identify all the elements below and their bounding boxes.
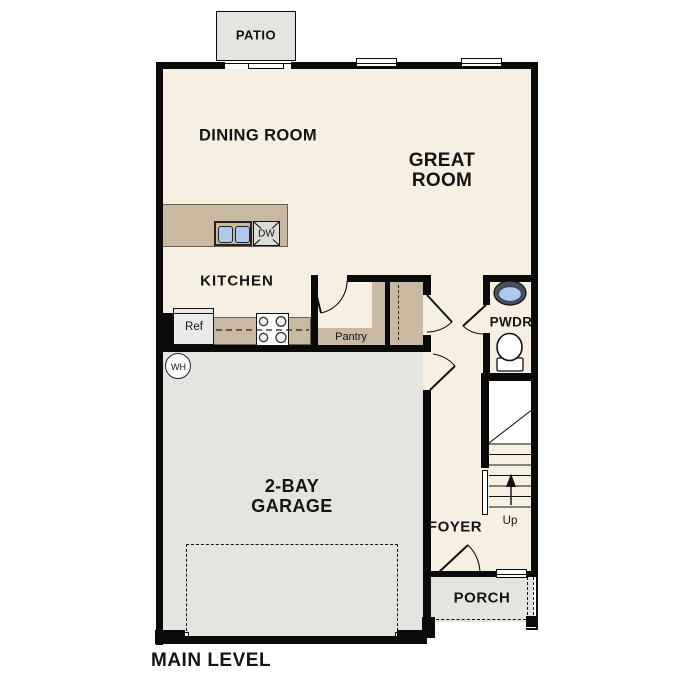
floor-plan: PATIO DINING ROOM GREAT ROOM KITCHEN Pan… [0, 0, 687, 687]
label-great-room-line2: ROOM [412, 170, 472, 191]
label-garage: 2-BAY GARAGE [251, 476, 332, 516]
garage-door-dashed-outline [186, 544, 398, 636]
label-stairs-up: Up [503, 515, 518, 527]
wall-pantry-closet-divider [385, 282, 390, 345]
porch-dashed-edge-bottom [431, 619, 526, 620]
label-pantry: Pantry [335, 331, 367, 343]
label-great-room: GREAT ROOM [409, 151, 476, 191]
wall-kitchen-hall-top [347, 275, 431, 282]
wall-garage-top [157, 345, 431, 352]
wall-powder-top [483, 275, 538, 282]
wall-powder-left-upper [483, 282, 490, 305]
wall-left [156, 62, 163, 645]
window-mullion [462, 63, 501, 64]
wall-ref-stub [163, 313, 173, 345]
wall-hall-left-upper [423, 275, 431, 295]
window-great-room [461, 58, 502, 67]
label-foyer: FOYER [428, 519, 482, 536]
wall-garage-bottom-block-left [155, 630, 185, 644]
porch-post [526, 616, 536, 627]
wall-stairs-top [483, 373, 538, 381]
porch-dashed-column-line-inner [533, 577, 534, 620]
label-porch: PORCH [454, 590, 511, 607]
window-porch [496, 569, 527, 578]
sink-basin-left [218, 226, 233, 243]
stove [256, 313, 289, 347]
porch-outline-bottom [526, 628, 538, 630]
label-garage-line1: 2-BAY [265, 476, 319, 496]
refrigerator-handle-line [174, 313, 213, 314]
label-water-heater: WH [171, 362, 186, 372]
porch-dashed-column-line-outer [527, 577, 528, 620]
stairs-stringer [482, 470, 488, 515]
window-mullion [357, 63, 396, 64]
window-dining [356, 58, 397, 67]
coat-closet-shelf [390, 282, 423, 345]
label-refrigerator: Ref [185, 321, 203, 333]
label-kitchen: KITCHEN [200, 273, 274, 290]
window-mullion [497, 574, 526, 575]
label-great-room-line1: GREAT [409, 150, 476, 171]
wall-pantry-left [311, 275, 318, 345]
label-patio: PATIO [236, 28, 276, 43]
wall-garage-bottom-block-right [397, 630, 427, 644]
wall-hall-left-mid [423, 335, 431, 352]
label-dishwasher: DW [257, 229, 276, 240]
stairs-landing [489, 381, 531, 443]
island-sink [214, 221, 252, 246]
label-garage-line2: GARAGE [251, 496, 332, 516]
wall-garage-bottom [156, 636, 427, 644]
plan-title: MAIN LEVEL [151, 650, 271, 672]
wall-foyer-left [423, 390, 431, 622]
label-powder-room: PWDR [490, 315, 533, 330]
closet-rod-dashed-line [398, 285, 399, 340]
label-dining-room: DINING ROOM [199, 127, 317, 146]
pantry-shelf-right [372, 282, 386, 328]
porch-outline-right [536, 577, 538, 629]
sink-basin-right [235, 226, 250, 243]
wall-stairs-left [481, 373, 489, 468]
patio-sliding-panel [248, 63, 284, 69]
